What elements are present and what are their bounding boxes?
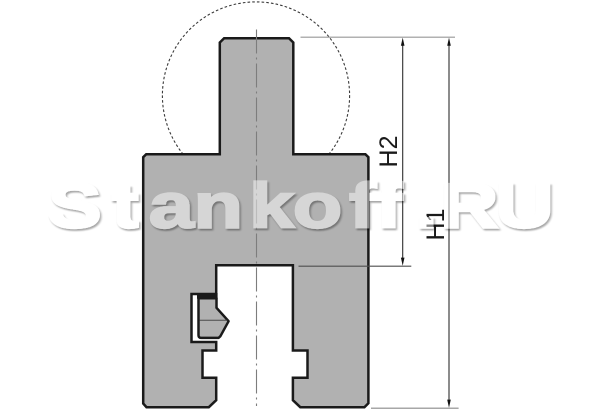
svg-text:H2: H2 (375, 136, 403, 168)
svg-text:Stankoff.RU: Stankoff.RU (48, 172, 554, 242)
